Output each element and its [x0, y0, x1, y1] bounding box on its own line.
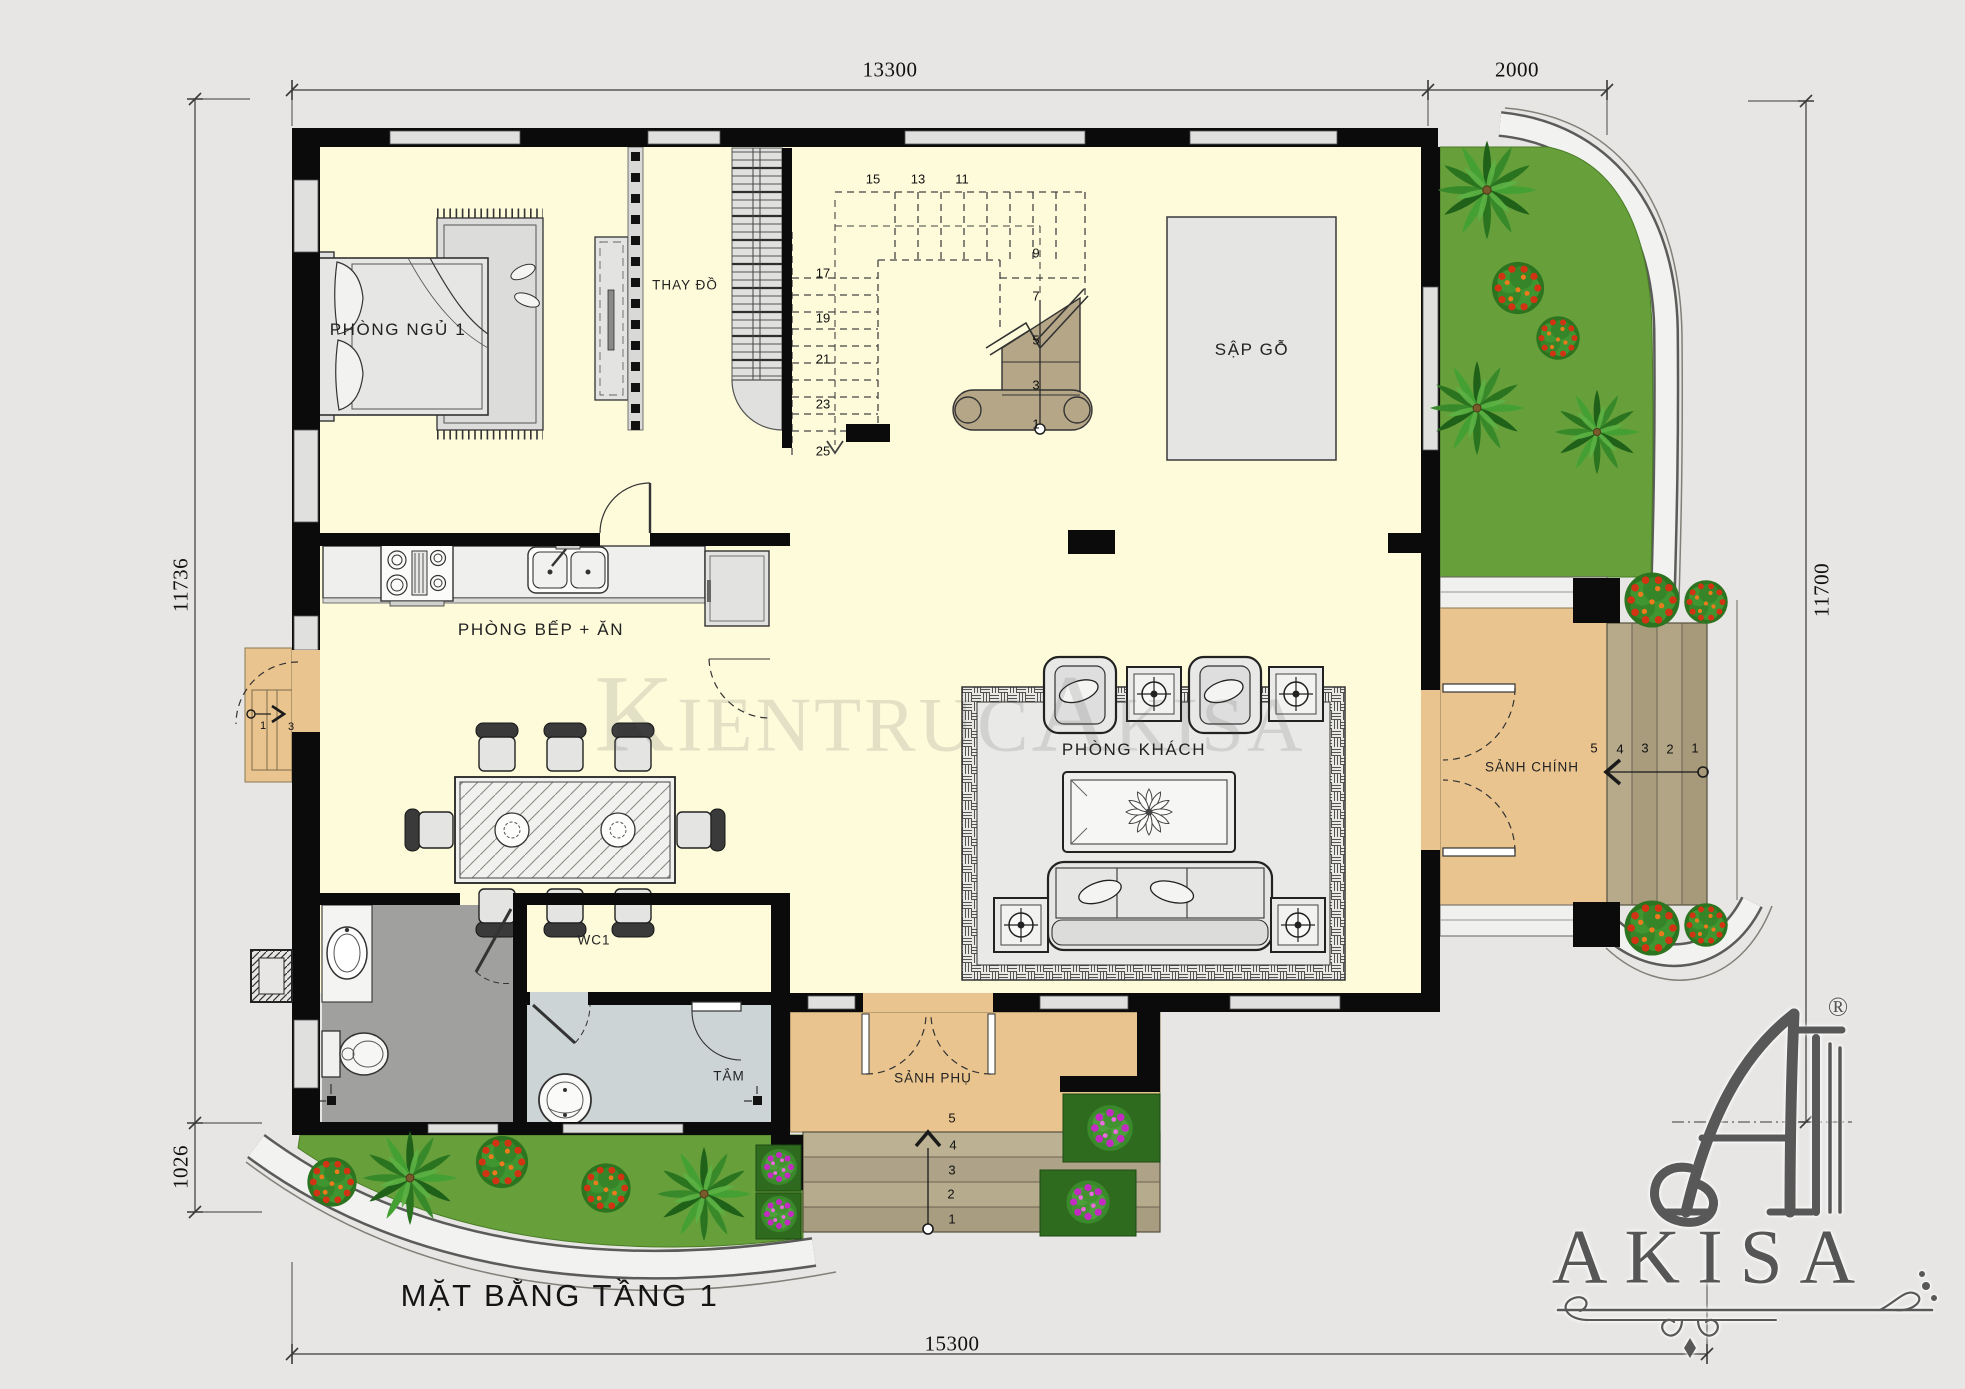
stair-number: 9 [1032, 246, 1039, 261]
dim-left: 11736 [169, 558, 194, 612]
stair-number: 15 [866, 172, 880, 187]
exterior-hatch-box [251, 950, 292, 1002]
stair-number: 5 [1032, 333, 1039, 348]
entry-step-number: 5 [1590, 741, 1597, 756]
floor-plan-page: KientrucAkisa PHÒNG NGỦ 1 THAY ĐỒ SẬP GỖ… [0, 0, 1965, 1389]
stair-number: 19 [816, 311, 830, 326]
side-step-number: 5 [948, 1111, 955, 1126]
stair-number: 7 [1032, 289, 1039, 304]
entry-step-number: 3 [1641, 741, 1648, 756]
west-step-number: 3 [288, 721, 294, 733]
stair-shaft [732, 148, 782, 430]
dim-top: 13300 [863, 58, 918, 83]
room-label-main-hall: SẢNH CHÍNH [1485, 760, 1579, 775]
stair-number: 1 [1032, 417, 1039, 432]
dim-top-right: 2000 [1495, 58, 1539, 83]
room-label-side-hall: SẢNH PHỤ [894, 1071, 972, 1086]
registered-mark: ® [1828, 992, 1849, 1023]
stair-number: 21 [816, 352, 830, 367]
stair-number: 13 [911, 172, 925, 187]
side-step-number: 1 [948, 1212, 955, 1227]
wood-platform [1167, 217, 1336, 460]
room-label-living: PHÒNG KHÁCH [1062, 740, 1206, 760]
stair-number: 11 [955, 172, 969, 187]
side-step-number: 3 [948, 1163, 955, 1178]
room-label-bedroom: PHÒNG NGỦ 1 [330, 320, 467, 340]
stair-number: 17 [816, 266, 830, 281]
room-label-wood-bed: SẬP GỖ [1215, 340, 1289, 360]
stair-number: 3 [1032, 378, 1039, 393]
room-label-wc: WC1 [578, 933, 611, 948]
brand-name: AKISA [1552, 1213, 1872, 1302]
entry-step-number: 2 [1666, 742, 1673, 757]
stair-number: 25 [816, 444, 830, 459]
room-label-bath: TẮM [713, 1069, 745, 1084]
side-step-number: 2 [947, 1187, 954, 1202]
stair-number: 23 [816, 397, 830, 412]
entry-step-number: 1 [1691, 741, 1698, 756]
main-entry-steps [1606, 623, 1708, 905]
plan-title: MẶT BẰNG TẦNG 1 [401, 1278, 720, 1314]
room-label-kitchen: PHÒNG BẾP + ĂN [458, 620, 624, 640]
west-step-number: 1 [260, 720, 266, 732]
dim-bottom: 15300 [925, 1332, 980, 1357]
side-step-number: 4 [949, 1138, 956, 1153]
dim-left-bottom: 1026 [169, 1145, 194, 1189]
room-label-dressing: THAY ĐỒ [652, 278, 718, 293]
akisa-logo [1540, 968, 1965, 1388]
west-porch [245, 648, 292, 782]
dim-right: 11700 [1810, 563, 1835, 617]
entry-step-number: 4 [1616, 742, 1623, 757]
akisa-monogram [1540, 968, 1965, 1388]
